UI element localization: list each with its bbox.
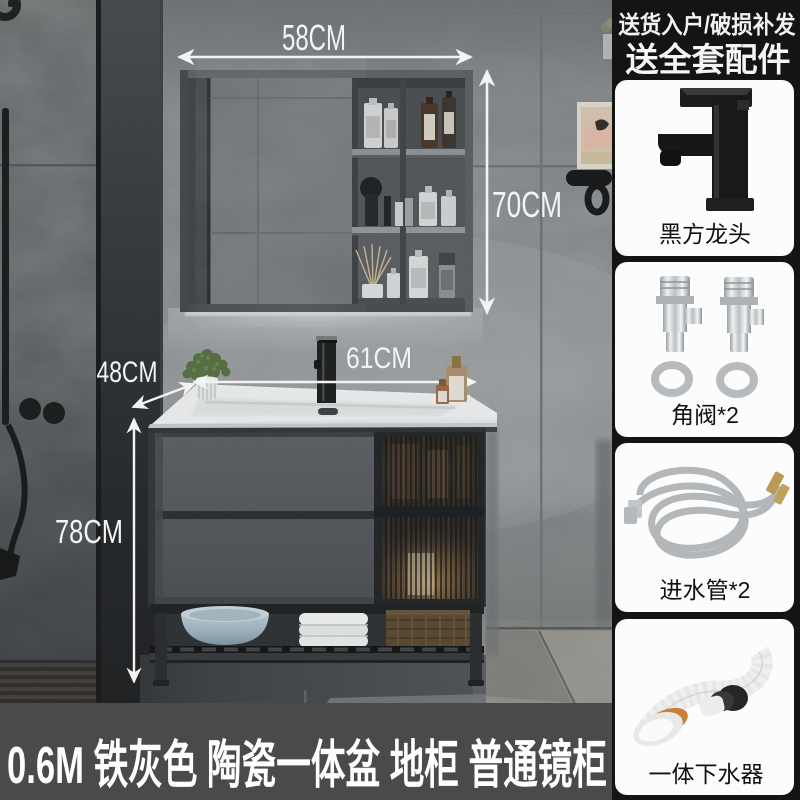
svg-text:0.6M 铁灰色 陶瓷一体盆 地柜 普通镜柜: 0.6M 铁灰色 陶瓷一体盆 地柜 普通镜柜 <box>7 737 607 795</box>
svg-text:进水管*2: 进水管*2 <box>660 577 751 603</box>
svg-text:角阀*2: 角阀*2 <box>671 402 739 428</box>
svg-text:一体下水器: 一体下水器 <box>649 761 764 787</box>
svg-text:送全套配件: 送全套配件 <box>626 41 791 78</box>
svg-text:黑方龙头: 黑方龙头 <box>659 221 751 247</box>
svg-text:送货入户/破损补发: 送货入户/破损补发 <box>619 11 796 39</box>
